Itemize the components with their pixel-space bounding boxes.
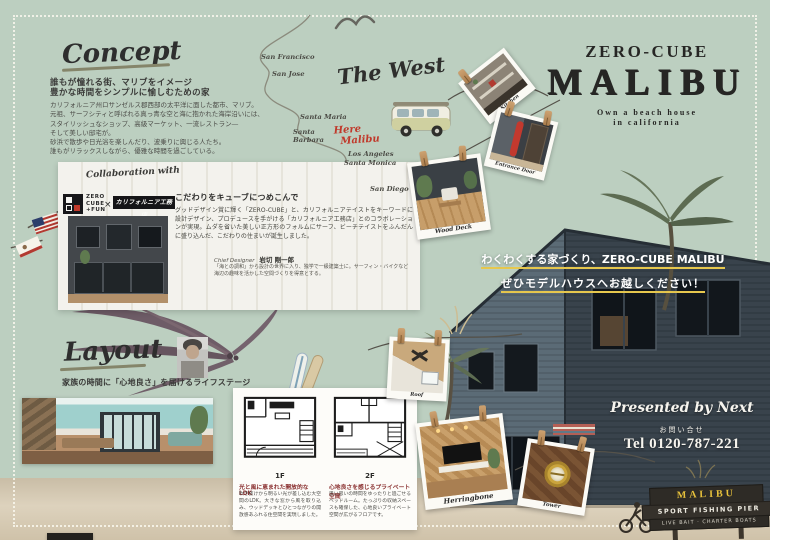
clothespin-icon [459,146,467,161]
tel-number: Tel 0120-787-221 [596,436,768,453]
facade-window [76,226,100,248]
polaroid-herringbone: Herringbone [415,413,513,510]
floorplan-1f-body: 吹き抜けから明るい光が差し込む大空間のLDK。大きな窓から風を取り込み、ウッドデ… [239,491,321,519]
dining-table [62,438,114,448]
brand-tagline-line1: Own a beach house [538,108,756,118]
collab-headline: こだわりをキューブにつめこんで [175,192,299,203]
cta-line1: わくわくする家づくり、ZERO-CUBE MALIBU [481,253,724,269]
map-city-san-francisco: San Francisco [261,53,314,61]
collab-times: × [104,200,112,210]
ceiling-lights [436,429,440,433]
house-facade-photo [68,216,168,303]
sofa [168,432,202,446]
facade-mullion [130,262,132,292]
floorplan-2f-body: 思い思いの時間をゆったりと過ごせるベッドルーム。たっぷりの収納スペースも確保した… [329,491,411,519]
map-city-santa-maria: Santa Maria [300,113,347,121]
door [522,123,549,166]
clothespin-icon [479,405,487,420]
map-city-san-diego: San Diego [370,185,409,193]
clothespin-icon [397,328,405,343]
plant [463,170,478,190]
layout-title: Layout [64,334,163,367]
brand-tagline: Own a beach house in california [538,108,756,128]
concept-body-line: カリフォルニア州ロサンゼルス郡西部の太平洋に面した都市、マリブ。 [50,101,264,110]
designer-name: 岩切 剛一郎 [259,256,294,264]
map-here-label: Here Malibu [333,122,380,147]
designer-title: Chief Designer 岩切 剛一郎 [214,254,294,264]
red-surfboard [509,120,525,157]
roof-ceiling-photo [391,341,446,394]
concept-body-line: スタイリッシュなショップ、高級マーケット、一流レストラン― [50,120,264,129]
cta-line2: ぜひモデルハウスへお越しください！ [501,277,705,293]
clothespin-icon [434,330,442,345]
logo-square-white [66,197,72,203]
skylight-window [421,371,439,385]
contact-label: お問い合せ [596,425,768,435]
polaroid-wood-deck: Wood Deck [407,153,491,240]
concept-body-line: 誰もがリラックスしながら、優雅な時間を過ごしている。 [50,147,264,156]
brand-logotype: ZERO-CUBE MALIBU Own a beach house in ca… [538,42,756,128]
concept-body-line: そして美しい邸宅が。 [50,129,264,138]
wood-deck-photo [412,158,486,231]
logo-text-zero: ZERO [86,194,105,201]
concept-headline-line2: 豊かな時間をシンプルに愉しむための家 [50,88,210,98]
plant [415,174,434,198]
presented-by: Presented by Next [596,400,768,416]
california-koumuten-logo: カリフォルニア工務店 [113,196,175,209]
portrait-shoulders [181,361,204,378]
logo-text-fun: +FUN [86,207,105,214]
clothespin-icon [537,430,546,446]
map-city-santa-barbara: Santa Barbara [293,128,333,144]
palm-plant [190,406,208,434]
malibu-pier-sign: MALIBU SPORT FISHING PIER LIVE BAIT · CH… [641,484,775,543]
marine-lamp-photo [522,443,590,508]
logo-square-red [74,205,80,211]
tv-screen [442,442,482,464]
living-staircase [22,398,56,450]
layout-subtitle: 家族の時間に「心地良さ」を届けるライフステージ [62,377,250,388]
living-room-photo [22,398,213,464]
concept-body-line: 元祖、サーフシティと呼ばれる真っ青な空と海に抱かれた海岸沿いには、 [50,110,264,119]
facade-window [106,224,132,250]
map-city-santa-monica: Santa Monica [344,159,396,167]
designer-portrait [177,337,208,378]
page-margin-bottom [0,540,800,559]
floorplan-1f-label: 1F [241,472,319,480]
concept-headline: 誰もが憧れる街、マリブをイメージ 豊かな時間をシンプルに愉しむための家 [50,78,210,98]
facade-mullion [102,262,104,292]
facade-sliding-doors [74,262,164,294]
facade-deck [68,294,168,303]
floorplan-2f-drawing [331,396,409,470]
portrait-face [186,345,199,359]
collaboration-panel: Collaboration with ZERO CUBE +FUN × カリフォ… [58,162,420,310]
brand-tagline-line2: in california [538,118,756,128]
map-city-san-jose: San Jose [272,70,305,78]
collaboration-script: Collaboration with [86,166,180,181]
facade-window [138,226,162,248]
polaroid-roof: Roof [386,336,449,401]
facade-plant [80,250,90,264]
designer-bio: 「海との調和」から設計の世界に入り、独学で一級建築士に。サーフィン・バイクなど海… [214,264,412,279]
brand-malibu: MALIBU [538,64,756,102]
floorplan-1f-drawing [241,396,319,470]
page-margin-right [770,0,800,559]
concept-body: カリフォルニア州ロサンゼルス郡西部の太平洋に面した都市、マリブ。 元祖、サーフシ… [50,101,264,157]
polaroid-tower: Tower [517,438,595,516]
footer-contact-block: Presented by Next お問い合せ Tel 0120-787-221 [596,400,768,453]
house-window [504,344,538,392]
floorplan-2f-label: 2F [331,472,409,480]
deck-chair [441,187,459,201]
logo-square-outline [66,205,72,211]
cta-block: わくわくする家づくり、ZERO-CUBE MALIBU ぜひモデルハウスへお越し… [462,248,744,291]
collab-body: グッドデザイン賞に輝く「ZERO-CUBE」と、カリフォルニアテイストをキーワー… [175,207,413,241]
brochure-page: Concept 誰もが憧れる街、マリブをイメージ 豊かな時間をシンプルに愉しむた… [0,0,800,559]
herringbone-wall-photo [419,417,507,498]
brand-zero-cube: ZERO-CUBE [538,42,756,62]
map-city-los-angeles: Los Angeles [348,150,394,158]
zero-cube-fun-logo-text: ZERO CUBE +FUN [86,194,105,214]
floorplan-card: 1F 2F 光と風に恵まれた開放的なLDK 心地良さを感じるプライベート空間 吹… [233,388,417,530]
concept-headline-line1: 誰もが憧れる街、マリブをイメージ [50,78,210,88]
house-window [468,352,494,390]
zero-cube-fun-logo-icon [63,194,83,214]
